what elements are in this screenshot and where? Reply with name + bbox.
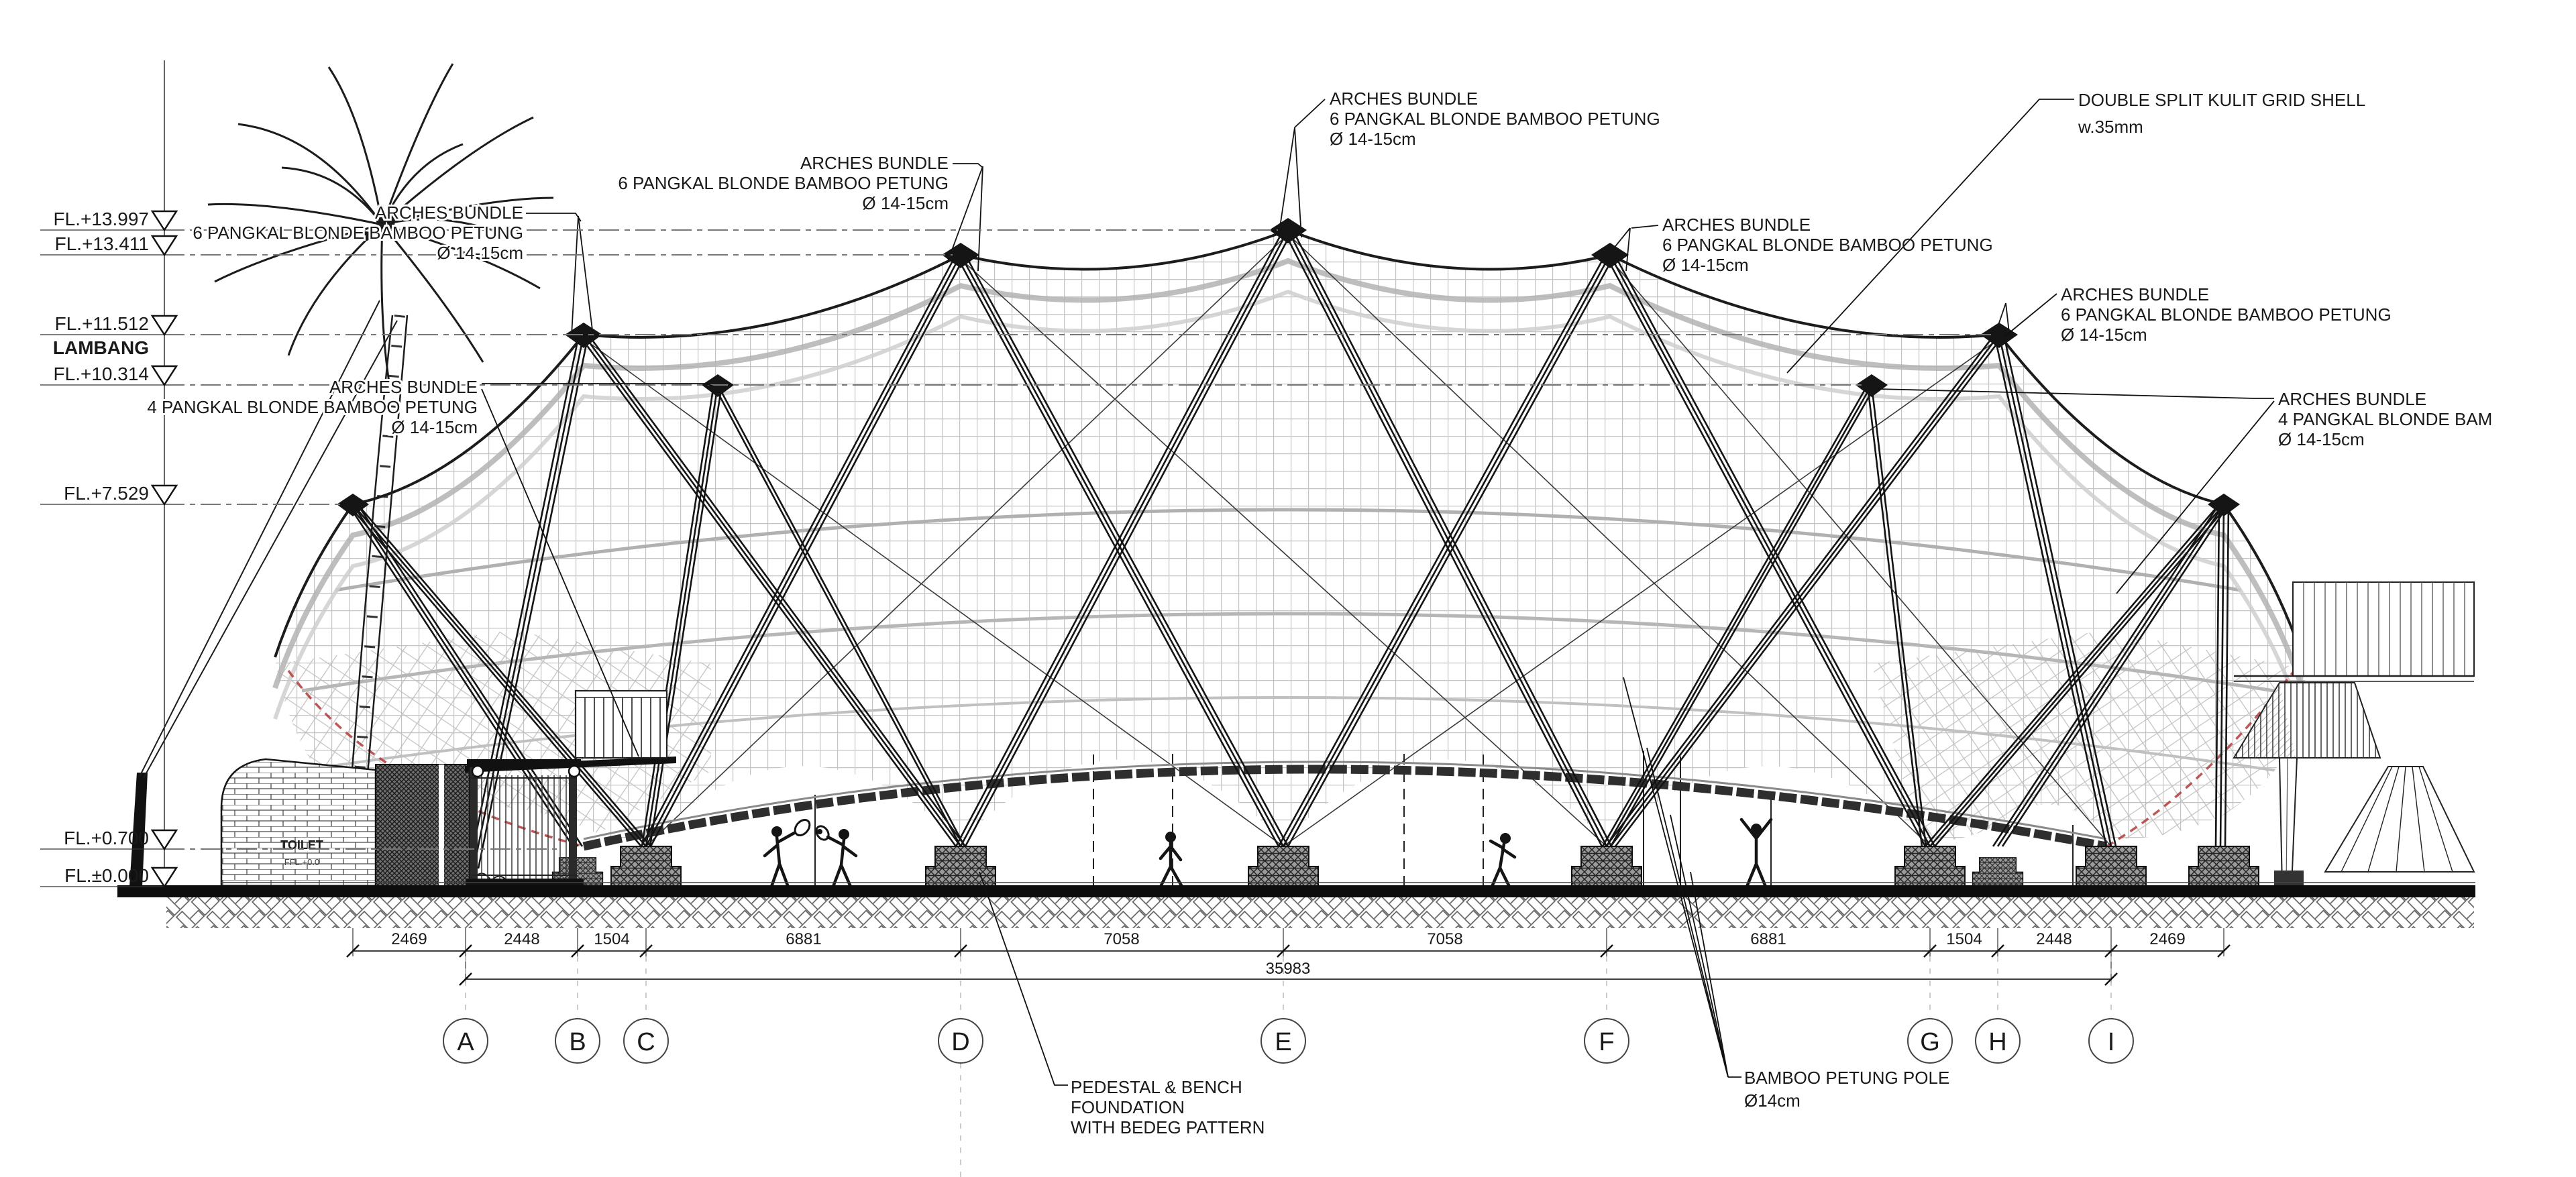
dim-2448-r: 2448 xyxy=(2036,930,2072,948)
svg-text:6 PANGKAL BLONDE BAMBOO PETUNG: 6 PANGKAL BLONDE BAMBOO PETUNG xyxy=(193,223,523,243)
dim-6881-l: 6881 xyxy=(786,930,821,948)
ground xyxy=(117,883,2475,928)
dim-2448-l: 2448 xyxy=(504,930,539,948)
grid-bubble-d: D xyxy=(951,1028,969,1056)
annotation-arches6-d: ARCHES BUNDLE 6 PANGKAL BLONDE BAMBOO PE… xyxy=(618,153,949,213)
svg-text:ARCHES BUNDLE: ARCHES BUNDLE xyxy=(1330,89,1478,109)
svg-text:Ø 14-15cm: Ø 14-15cm xyxy=(391,417,478,437)
figure-playing xyxy=(1491,833,1515,887)
level-label-0700: FL.+0.700 xyxy=(64,828,149,848)
dim-7058-r: 7058 xyxy=(1427,930,1462,948)
drawing-canvas: TOILET FFL.+0.0 xyxy=(0,0,2576,1177)
svg-text:Ø14cm: Ø14cm xyxy=(1744,1090,1801,1111)
annotation-arches6-f: ARCHES BUNDLE 6 PANGKAL BLONDE BAMBOO PE… xyxy=(1662,215,1993,275)
dim-1504-r: 1504 xyxy=(1946,930,1982,948)
annotation-gridshell: DOUBLE SPLIT KULIT GRID SHELL w.35mm xyxy=(2078,90,2365,137)
dim-total: 35983 xyxy=(1266,960,1311,978)
svg-text:w.35mm: w.35mm xyxy=(2078,117,2143,137)
level-label-7529: FL.+7.529 xyxy=(64,483,149,504)
svg-text:ARCHES BUNDLE: ARCHES BUNDLE xyxy=(2278,389,2426,409)
dim-6881-r: 6881 xyxy=(1750,930,1786,948)
figure-badminton-1 xyxy=(765,817,822,887)
svg-text:Ø 14-15cm: Ø 14-15cm xyxy=(2061,325,2147,345)
grid-bubble-h: H xyxy=(1988,1028,2006,1056)
svg-text:4 PANGKAL BLONDE BAMBOO PETUNG: 4 PANGKAL BLONDE BAMBOO PETUNG xyxy=(147,397,478,417)
svg-text:PEDESTAL & BENCH: PEDESTAL & BENCH xyxy=(1071,1077,1242,1097)
svg-text:ARCHES BUNDLE: ARCHES BUNDLE xyxy=(2061,284,2209,304)
svg-text:4 PANGKAL BLONDE BAM: 4 PANGKAL BLONDE BAM xyxy=(2278,409,2492,429)
svg-text:Ø 14-15cm: Ø 14-15cm xyxy=(1330,129,1416,149)
svg-text:FOUNDATION: FOUNDATION xyxy=(1071,1097,1185,1117)
annotation-arches6-right: ARCHES BUNDLE 6 PANGKAL BLONDE BAMBOO PE… xyxy=(2061,284,2392,345)
dim-2469-l: 2469 xyxy=(391,930,427,948)
grid-bubble-i: I xyxy=(2108,1028,2115,1056)
floor-slab xyxy=(117,885,2475,897)
svg-text:WITH BEDEG PATTERN: WITH BEDEG PATTERN xyxy=(1071,1117,1265,1137)
svg-text:ARCHES BUNDLE: ARCHES BUNDLE xyxy=(375,203,523,223)
ground-hatch xyxy=(166,897,2474,928)
svg-text:6 PANGKAL BLONDE BAMBOO PETUNG: 6 PANGKAL BLONDE BAMBOO PETUNG xyxy=(2061,304,2392,325)
grid-bubble-a: A xyxy=(457,1028,474,1056)
svg-text:Ø 14-15cm: Ø 14-15cm xyxy=(437,243,523,263)
grid-bubbles: A B C D E F G H I xyxy=(443,1019,2133,1063)
elevation-drawing: TOILET FFL.+0.0 xyxy=(0,0,2576,1177)
svg-text:Ø 14-15cm: Ø 14-15cm xyxy=(1662,255,1749,275)
cone-structure xyxy=(2325,767,2474,872)
annotation-arches4-right: ARCHES BUNDLE 4 PANGKAL BLONDE BAM Ø 14-… xyxy=(2278,389,2492,449)
level-label-lambang: LAMBANG xyxy=(53,337,149,358)
railing xyxy=(576,691,667,758)
grid-bubble-c: C xyxy=(637,1028,655,1056)
dim-2469-r: 2469 xyxy=(2149,930,2185,948)
level-label-10314: FL.+10.314 xyxy=(54,363,149,384)
level-label-0000: FL.±0.000 xyxy=(64,865,149,886)
annotation-arches6-top: ARCHES BUNDLE 6 PANGKAL BLONDE BAMBOO PE… xyxy=(1330,89,1660,149)
svg-text:ARCHES BUNDLE: ARCHES BUNDLE xyxy=(329,377,478,397)
svg-text:ARCHES BUNDLE: ARCHES BUNDLE xyxy=(800,153,949,173)
svg-text:6 PANGKAL BLONDE BAMBOO PETUNG: 6 PANGKAL BLONDE BAMBOO PETUNG xyxy=(618,173,949,193)
annotation-pole: BAMBOO PETUNG POLE Ø14cm xyxy=(1744,1068,1949,1111)
svg-text:Ø 14-15cm: Ø 14-15cm xyxy=(862,193,949,213)
grid-bubble-g: G xyxy=(1920,1028,1940,1056)
svg-text:DOUBLE SPLIT KULIT GRID SHELL: DOUBLE SPLIT KULIT GRID SHELL xyxy=(2078,90,2365,110)
svg-text:ARCHES BUNDLE: ARCHES BUNDLE xyxy=(1662,215,1811,235)
annotation-arches4-left: ARCHES BUNDLE 4 PANGKAL BLONDE BAMBOO PE… xyxy=(147,377,478,437)
figure-cheering xyxy=(1741,820,1771,887)
pedestals xyxy=(553,846,2259,887)
level-label-13411: FL.+13.411 xyxy=(55,233,149,254)
dim-7058-l: 7058 xyxy=(1104,930,1139,948)
toilet-ffl-label: FFL.+0.0 xyxy=(284,857,319,867)
svg-text:6 PANGKAL BLONDE BAMBOO PETUNG: 6 PANGKAL BLONDE BAMBOO PETUNG xyxy=(1662,235,1993,255)
grid-bubble-b: B xyxy=(569,1028,586,1056)
annotation-pedestal: PEDESTAL & BENCH FOUNDATION WITH BEDEG P… xyxy=(1071,1077,1265,1137)
grid-bubble-e: E xyxy=(1275,1028,1291,1056)
svg-text:BAMBOO PETUNG POLE: BAMBOO PETUNG POLE xyxy=(1744,1068,1949,1088)
grid-bubble-f: F xyxy=(1599,1028,1614,1056)
level-label-13997: FL.+13.997 xyxy=(54,209,149,229)
level-label-11512: FL.+11.512 xyxy=(55,313,149,334)
figure-walking xyxy=(1161,832,1182,887)
grid-drop-lines xyxy=(466,956,2111,1177)
dim-1504-l: 1504 xyxy=(594,930,629,948)
svg-text:6 PANGKAL BLONDE BAMBOO PETUNG: 6 PANGKAL BLONDE BAMBOO PETUNG xyxy=(1330,109,1660,129)
pavilion-post xyxy=(2279,758,2297,887)
svg-text:Ø 14-15cm: Ø 14-15cm xyxy=(2278,429,2365,449)
annotation-arches6-palm: ARCHES BUNDLE 6 PANGKAL BLONDE BAMBOO PE… xyxy=(193,203,523,263)
